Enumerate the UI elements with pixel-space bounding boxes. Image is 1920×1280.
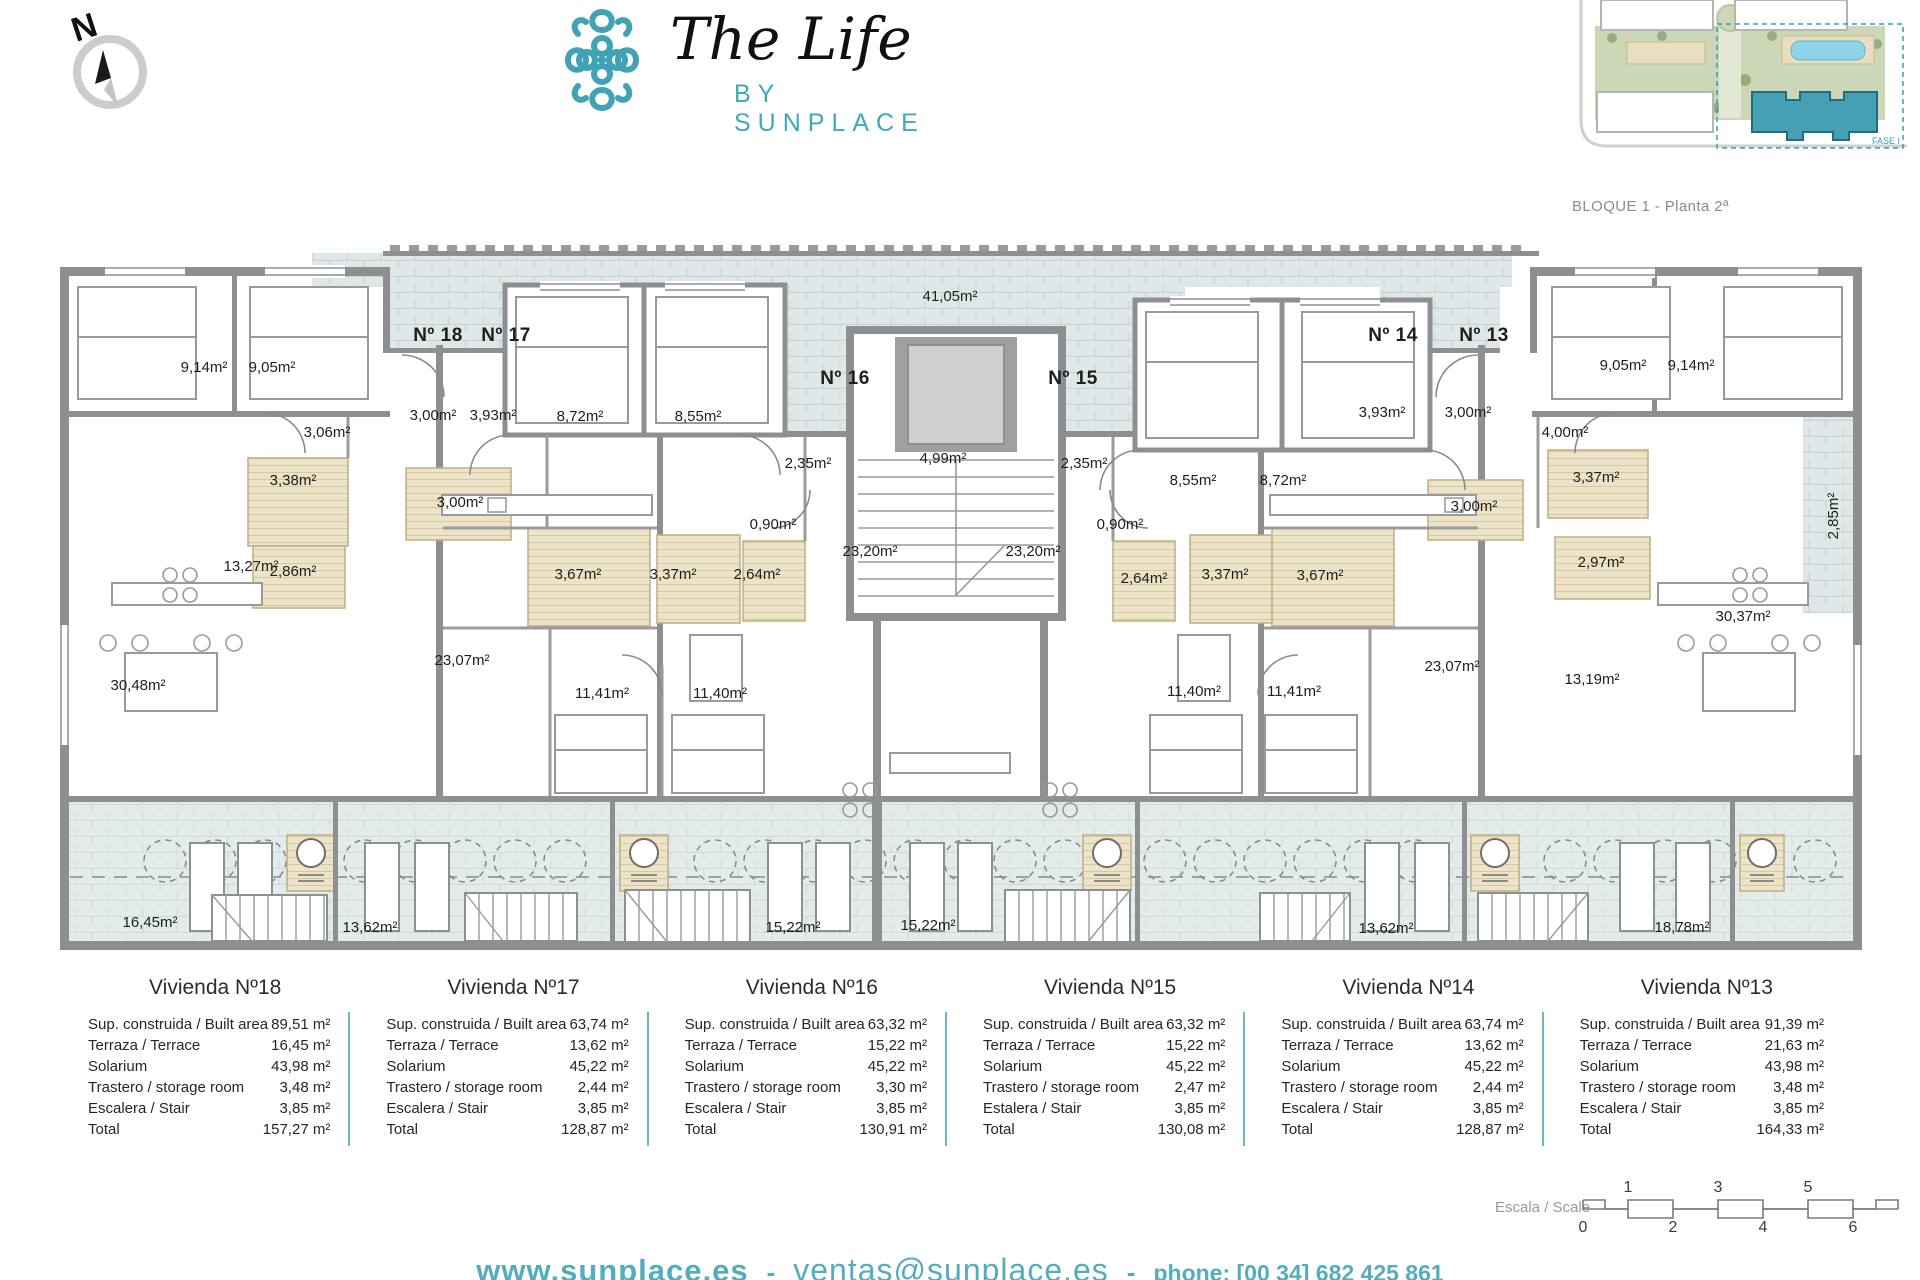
footer-separator: -: [767, 1257, 776, 1280]
scale-label: Escala / Scale: [1495, 1199, 1590, 1216]
vivienda-title: Vivienda Nº14: [1273, 976, 1543, 1000]
spec-row: Escalera / Stair3,85 m²: [386, 1098, 642, 1119]
spec-value: 3,30 m²: [876, 1077, 941, 1098]
spec-row: Trastero / storage room2,44 m²: [1281, 1077, 1537, 1098]
north-compass-icon: N: [48, 2, 168, 122]
spec-row: Terraza / Terrace15,22 m²: [685, 1035, 941, 1056]
spec-value: 16,45 m²: [271, 1035, 344, 1056]
room-area-label: 1: [1624, 1179, 1633, 1196]
spec-row: Sup. construida / Built area89,51 m²: [88, 1014, 344, 1035]
vivienda-table: Vivienda Nº17Sup. construida / Built are…: [364, 972, 662, 1146]
spec-label: Total: [685, 1119, 717, 1140]
spec-value: 43,98 m²: [271, 1056, 344, 1077]
spec-row: Solarium43,98 m²: [88, 1056, 344, 1077]
room-area-label: 4,99m²: [920, 450, 967, 467]
vivienda-title: Vivienda Nº13: [1572, 976, 1842, 1000]
spec-label: Total: [1281, 1119, 1313, 1140]
spec-label: Sup. construida / Built area: [685, 1014, 865, 1035]
spec-row: Trastero / storage room2,44 m²: [386, 1077, 642, 1098]
room-area-label: 41,05m²: [922, 288, 977, 305]
spec-value: 45,22 m²: [569, 1056, 642, 1077]
spec-value: 128,87 m²: [1456, 1119, 1538, 1140]
spec-label: Escalera / Stair: [1281, 1098, 1383, 1119]
spec-row: Solarium43,98 m²: [1580, 1056, 1838, 1077]
footer-website-link[interactable]: www.sunplace.es: [476, 1253, 748, 1280]
spec-value: 3,48 m²: [1773, 1077, 1838, 1098]
spec-label: Terraza / Terrace: [1580, 1035, 1692, 1056]
spec-label: Solarium: [1281, 1056, 1340, 1077]
vivienda-title: Vivienda Nº18: [80, 976, 350, 1000]
room-area-label: 9,14m²: [1668, 357, 1715, 374]
spec-label: Trastero / storage room: [88, 1077, 244, 1098]
spec-value: 45,22 m²: [868, 1056, 941, 1077]
spec-row: Total130,91 m²: [685, 1119, 941, 1140]
spec-label: Escalera / Stair: [88, 1098, 190, 1119]
room-area-label: 3,06m²: [304, 424, 351, 441]
vivienda-table: Vivienda Nº15Sup. construida / Built are…: [961, 972, 1259, 1146]
spec-label: Terraza / Terrace: [1281, 1035, 1393, 1056]
spec-value: 43,98 m²: [1765, 1056, 1838, 1077]
spec-row: Total130,08 m²: [983, 1119, 1239, 1140]
spec-value: 2,44 m²: [1473, 1077, 1538, 1098]
spec-row: Sup. construida / Built area63,32 m²: [983, 1014, 1239, 1035]
spec-value: 128,87 m²: [561, 1119, 643, 1140]
spec-value: 21,63 m²: [1765, 1035, 1838, 1056]
spec-row: Total128,87 m²: [386, 1119, 642, 1140]
apartment-number-label: Nº 13: [1459, 325, 1509, 346]
room-area-label: 9,05m²: [249, 359, 296, 376]
room-area-label: 11,41m²: [575, 685, 629, 702]
spec-value: 3,85 m²: [1473, 1098, 1538, 1119]
footer-email-link[interactable]: ventas@sunplace.es: [793, 1252, 1109, 1280]
spec-label: Sup. construida / Built area: [983, 1014, 1163, 1035]
spec-value: 3,85 m²: [876, 1098, 941, 1119]
spec-value: 15,22 m²: [1166, 1035, 1239, 1056]
room-area-label: 18,78m²: [1654, 919, 1709, 936]
room-area-label: 13,27m²: [223, 558, 278, 575]
spec-row: Sup. construida / Built area63,32 m²: [685, 1014, 941, 1035]
spec-value: 63,74 m²: [569, 1014, 642, 1035]
spec-label: Escalera / Stair: [685, 1098, 787, 1119]
spec-value: 63,32 m²: [1166, 1014, 1239, 1035]
brand-subtitle: BY SUNPLACE: [734, 80, 925, 138]
spec-label: Trastero / storage room: [386, 1077, 542, 1098]
room-area-label: 3,00m²: [1451, 498, 1498, 515]
spec-value: 15,22 m²: [868, 1035, 941, 1056]
spec-row: Total164,33 m²: [1580, 1119, 1838, 1140]
room-area-label: 30,37m²: [1715, 608, 1770, 625]
spec-value: 157,27 m²: [263, 1119, 345, 1140]
siteplan-thumbnail: FASE I: [1567, 0, 1912, 190]
spec-row: Terraza / Terrace13,62 m²: [386, 1035, 642, 1056]
apartment-number-label: Nº 18: [413, 325, 463, 346]
spec-label: Estalera / Stair: [983, 1098, 1081, 1119]
spec-label: Trastero / storage room: [1580, 1077, 1736, 1098]
spec-value: 3,85 m²: [279, 1098, 344, 1119]
spec-value: 2,47 m²: [1174, 1077, 1239, 1098]
spec-row: Escalera / Stair3,85 m²: [88, 1098, 344, 1119]
room-area-label: 0: [1579, 1219, 1588, 1236]
room-area-label: 6: [1849, 1219, 1858, 1236]
room-area-label: 23,07m²: [1424, 658, 1479, 675]
siteplan-caption: BLOQUE 1 - Planta 2ª: [1572, 198, 1729, 215]
spec-label: Total: [88, 1119, 120, 1140]
spec-label: Trastero / storage room: [685, 1077, 841, 1098]
spec-row: Total157,27 m²: [88, 1119, 344, 1140]
room-area-label: 2,35m²: [785, 455, 832, 472]
spec-label: Sup. construida / Built area: [386, 1014, 566, 1035]
room-area-label: 3,37m²: [1202, 566, 1249, 583]
apartment-number-label: Nº 14: [1368, 325, 1418, 346]
room-area-label: 0,90m²: [750, 516, 797, 533]
apartment-number-label: Nº 17: [481, 325, 531, 346]
spec-row: Escalera / Stair3,85 m²: [685, 1098, 941, 1119]
spec-value: 89,51 m²: [271, 1014, 344, 1035]
room-area-label: 8,72m²: [557, 408, 604, 425]
spec-row: Estalera / Stair3,85 m²: [983, 1098, 1239, 1119]
spec-label: Terraza / Terrace: [386, 1035, 498, 1056]
spec-label: Sup. construida / Built area: [1281, 1014, 1461, 1035]
room-area-label: 8,55m²: [675, 408, 722, 425]
room-area-label: 2,85m²: [1825, 493, 1842, 540]
room-area-label: 16,45m²: [122, 914, 177, 931]
spec-label: Sup. construida / Built area: [1580, 1014, 1760, 1035]
brand-logo: The Life BY SUNPLACE: [556, 4, 912, 116]
spec-label: Total: [983, 1119, 1015, 1140]
spec-row: Terraza / Terrace15,22 m²: [983, 1035, 1239, 1056]
vivienda-title: Vivienda Nº17: [378, 976, 648, 1000]
room-area-label: 15,22m²: [765, 919, 820, 936]
room-area-label: 9,14m²: [181, 359, 228, 376]
spec-row: Sup. construida / Built area63,74 m²: [1281, 1014, 1537, 1035]
floor-plan: 41,05m²9,14m²9,05m²3,06m²3,00m²3,93m²8,7…: [50, 245, 1870, 957]
spec-value: 63,74 m²: [1464, 1014, 1537, 1035]
room-area-label: 8,55m²: [1170, 472, 1217, 489]
vivienda-table: Vivienda Nº14Sup. construida / Built are…: [1259, 972, 1557, 1146]
room-area-label: 9,05m²: [1600, 357, 1647, 374]
room-area-label: 3,67m²: [555, 566, 602, 583]
spec-value: 13,62 m²: [569, 1035, 642, 1056]
spec-row: Trastero / storage room3,48 m²: [88, 1077, 344, 1098]
spec-value: 3,48 m²: [279, 1077, 344, 1098]
sunplace-knot-icon: [556, 4, 648, 116]
room-area-label: 3: [1714, 1179, 1723, 1196]
room-area-label: 3,00m²: [410, 407, 457, 424]
spec-label: Escalera / Stair: [1580, 1098, 1682, 1119]
room-area-label: 0,90m²: [1097, 516, 1144, 533]
spec-label: Terraza / Terrace: [88, 1035, 200, 1056]
fase-label: FASE I: [1872, 136, 1900, 146]
room-area-label: 23,20m²: [842, 543, 897, 560]
spec-row: Sup. construida / Built area63,74 m²: [386, 1014, 642, 1035]
room-area-label: 4,00m²: [1542, 424, 1589, 441]
spec-value: 130,08 m²: [1158, 1119, 1240, 1140]
room-area-label: 11,41m²: [1267, 683, 1321, 700]
room-area-label: 3,93m²: [470, 407, 517, 424]
spec-row: Trastero / storage room2,47 m²: [983, 1077, 1239, 1098]
room-area-label: 3,38m²: [270, 472, 317, 489]
spec-row: Terraza / Terrace13,62 m²: [1281, 1035, 1537, 1056]
apartment-number-label: Nº 15: [1048, 368, 1098, 389]
spec-label: Total: [386, 1119, 418, 1140]
room-area-label: 11,40m²: [1167, 683, 1221, 700]
spec-value: 3,85 m²: [578, 1098, 643, 1119]
spec-label: Solarium: [88, 1056, 147, 1077]
spec-value: 91,39 m²: [1765, 1014, 1838, 1035]
spec-value: 164,33 m²: [1756, 1119, 1838, 1140]
room-area-label: 23,07m²: [434, 652, 489, 669]
spec-label: Sup. construida / Built area: [88, 1014, 268, 1035]
room-area-label: 13,19m²: [1564, 671, 1619, 688]
spec-row: Solarium45,22 m²: [386, 1056, 642, 1077]
spec-value: 3,85 m²: [1773, 1098, 1838, 1119]
spec-value: 3,85 m²: [1174, 1098, 1239, 1119]
vivienda-table: Vivienda Nº13Sup. construida / Built are…: [1558, 972, 1856, 1146]
spec-value: 45,22 m²: [1464, 1056, 1537, 1077]
spec-label: Solarium: [983, 1056, 1042, 1077]
spec-row: Solarium45,22 m²: [685, 1056, 941, 1077]
room-area-label: 8,72m²: [1260, 472, 1307, 489]
room-area-label: 13,62m²: [342, 919, 397, 936]
room-area-label: 2,64m²: [1121, 570, 1168, 587]
spec-value: 45,22 m²: [1166, 1056, 1239, 1077]
spec-value: 63,32 m²: [868, 1014, 941, 1035]
room-area-label: 5: [1804, 1179, 1813, 1196]
room-area-label: 2: [1669, 1219, 1678, 1236]
north-label: N: [67, 6, 102, 50]
scale-bar: Escala / Scale 135 0246: [1440, 1168, 1900, 1248]
footer-phone: phone: [00 34] 682 425 861: [1153, 1260, 1443, 1280]
room-area-label: 3,00m²: [1445, 404, 1492, 421]
room-area-label: 3,67m²: [1297, 567, 1344, 584]
room-area-label: 4: [1759, 1219, 1768, 1236]
spec-row: Trastero / storage room3,30 m²: [685, 1077, 941, 1098]
spec-label: Trastero / storage room: [983, 1077, 1139, 1098]
spec-label: Solarium: [685, 1056, 744, 1077]
spec-row: Solarium45,22 m²: [1281, 1056, 1537, 1077]
room-area-label: 2,35m²: [1061, 455, 1108, 472]
vivienda-tables: Vivienda Nº18Sup. construida / Built are…: [66, 972, 1856, 1146]
room-area-label: 2,64m²: [734, 566, 781, 583]
room-area-label: 3,37m²: [650, 566, 697, 583]
spec-row: Total128,87 m²: [1281, 1119, 1537, 1140]
spec-value: 2,44 m²: [578, 1077, 643, 1098]
footer-contact: www.sunplace.es - ventas@sunplace.es - p…: [476, 1252, 1443, 1280]
spec-label: Escalera / Stair: [386, 1098, 488, 1119]
spec-label: Solarium: [1580, 1056, 1639, 1077]
page: N The Life BY SUNPLACE: [0, 0, 1920, 1280]
room-area-label: 3,37m²: [1573, 469, 1620, 486]
vivienda-title: Vivienda Nº15: [975, 976, 1245, 1000]
apartment-number-label: Nº 16: [820, 368, 870, 389]
spec-label: Solarium: [386, 1056, 445, 1077]
room-area-label: 13,62m²: [1358, 920, 1413, 937]
spec-label: Terraza / Terrace: [685, 1035, 797, 1056]
room-area-label: 3,00m²: [437, 494, 484, 511]
spec-row: Escalera / Stair3,85 m²: [1281, 1098, 1537, 1119]
footer-separator: -: [1127, 1257, 1136, 1280]
spec-row: Terraza / Terrace16,45 m²: [88, 1035, 344, 1056]
vivienda-table: Vivienda Nº16Sup. construida / Built are…: [663, 972, 961, 1146]
room-area-label: 30,48m²: [110, 677, 165, 694]
spec-value: 130,91 m²: [859, 1119, 941, 1140]
spec-row: Terraza / Terrace21,63 m²: [1580, 1035, 1838, 1056]
room-area-label: 15,22m²: [900, 917, 955, 934]
vivienda-title: Vivienda Nº16: [677, 976, 947, 1000]
room-area-label: 11,40m²: [693, 685, 747, 702]
spec-row: Trastero / storage room3,48 m²: [1580, 1077, 1838, 1098]
spec-row: Solarium45,22 m²: [983, 1056, 1239, 1077]
room-area-label: 2,97m²: [1578, 554, 1625, 571]
spec-label: Trastero / storage room: [1281, 1077, 1437, 1098]
spec-label: Total: [1580, 1119, 1612, 1140]
spec-value: 13,62 m²: [1464, 1035, 1537, 1056]
vivienda-table: Vivienda Nº18Sup. construida / Built are…: [66, 972, 364, 1146]
spec-label: Terraza / Terrace: [983, 1035, 1095, 1056]
room-area-label: 3,93m²: [1359, 404, 1406, 421]
room-area-label: 23,20m²: [1005, 543, 1060, 560]
spec-row: Escalera / Stair3,85 m²: [1580, 1098, 1838, 1119]
spec-row: Sup. construida / Built area91,39 m²: [1580, 1014, 1838, 1035]
